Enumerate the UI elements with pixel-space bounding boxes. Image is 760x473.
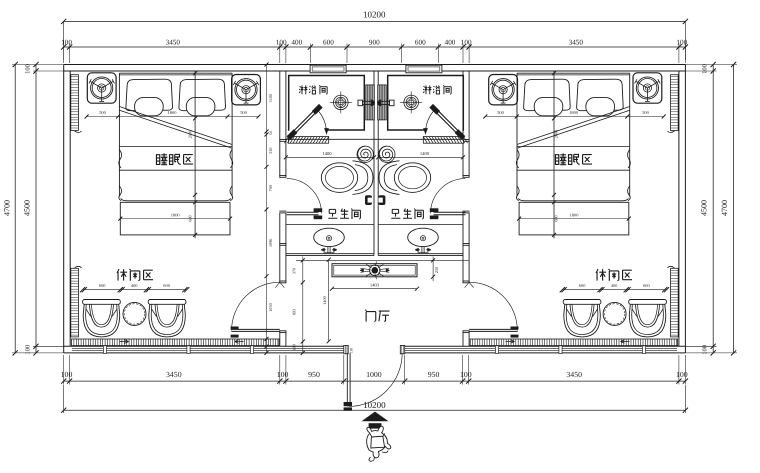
svg-text:1403: 1403 bbox=[370, 282, 380, 287]
svg-text:900: 900 bbox=[369, 38, 380, 46]
svg-text:100: 100 bbox=[676, 38, 687, 46]
svg-text:1800: 1800 bbox=[569, 110, 579, 115]
svg-text:100: 100 bbox=[61, 38, 72, 46]
svg-text:1400: 1400 bbox=[420, 151, 430, 156]
svg-text:180: 180 bbox=[292, 344, 297, 350]
svg-text:950: 950 bbox=[308, 370, 320, 379]
svg-text:600: 600 bbox=[554, 215, 559, 221]
svg-text:600: 600 bbox=[163, 283, 170, 288]
svg-text:1096: 1096 bbox=[268, 239, 273, 247]
svg-text:100: 100 bbox=[460, 370, 472, 379]
svg-text:1800: 1800 bbox=[168, 110, 178, 115]
svg-text:2000: 2000 bbox=[554, 130, 559, 138]
svg-text:100: 100 bbox=[676, 370, 688, 379]
svg-text:400: 400 bbox=[131, 283, 138, 288]
svg-text:1100: 1100 bbox=[268, 94, 273, 102]
svg-text:4700: 4700 bbox=[3, 200, 12, 216]
svg-text:100: 100 bbox=[277, 370, 289, 379]
svg-text:700: 700 bbox=[268, 185, 273, 191]
svg-text:100: 100 bbox=[276, 38, 287, 46]
svg-text:1800: 1800 bbox=[570, 212, 580, 217]
svg-text:3450: 3450 bbox=[566, 370, 582, 379]
svg-text:600: 600 bbox=[323, 38, 334, 46]
svg-text:400: 400 bbox=[611, 283, 618, 288]
svg-text:3450: 3450 bbox=[569, 38, 584, 46]
svg-text:1000: 1000 bbox=[366, 370, 382, 379]
svg-text:10200: 10200 bbox=[363, 10, 386, 20]
svg-text:4700: 4700 bbox=[720, 200, 729, 216]
svg-text:3450: 3450 bbox=[166, 370, 182, 379]
svg-text:4500: 4500 bbox=[700, 200, 709, 216]
svg-text:2000: 2000 bbox=[188, 130, 193, 138]
svg-text:400: 400 bbox=[445, 38, 456, 46]
svg-text:4500: 4500 bbox=[23, 200, 32, 216]
svg-text:250: 250 bbox=[434, 267, 439, 273]
svg-text:600: 600 bbox=[188, 215, 193, 221]
svg-text:1400: 1400 bbox=[322, 151, 332, 156]
svg-text:100: 100 bbox=[61, 370, 73, 379]
svg-text:400: 400 bbox=[291, 38, 302, 46]
svg-text:600: 600 bbox=[99, 283, 106, 288]
svg-text:1030: 1030 bbox=[268, 303, 273, 311]
svg-text:100: 100 bbox=[25, 64, 32, 74]
svg-text:950: 950 bbox=[428, 370, 440, 379]
svg-text:600: 600 bbox=[415, 38, 426, 46]
svg-text:500: 500 bbox=[99, 110, 106, 115]
svg-text:500: 500 bbox=[642, 110, 649, 115]
svg-text:10200: 10200 bbox=[363, 400, 386, 410]
svg-text:100: 100 bbox=[702, 64, 709, 74]
svg-text:100: 100 bbox=[25, 345, 32, 355]
svg-text:530: 530 bbox=[268, 147, 273, 153]
svg-text:893: 893 bbox=[292, 309, 297, 315]
svg-text:3450: 3450 bbox=[166, 38, 181, 46]
svg-text:600: 600 bbox=[643, 283, 650, 288]
svg-text:130: 130 bbox=[350, 348, 354, 354]
svg-text:370: 370 bbox=[292, 268, 297, 274]
svg-text:500: 500 bbox=[240, 110, 247, 115]
svg-text:100: 100 bbox=[461, 38, 472, 46]
svg-text:1400: 1400 bbox=[322, 296, 327, 304]
svg-text:500: 500 bbox=[497, 110, 504, 115]
svg-text:50: 50 bbox=[269, 131, 273, 135]
svg-text:1800: 1800 bbox=[171, 212, 181, 217]
svg-text:600: 600 bbox=[579, 283, 586, 288]
